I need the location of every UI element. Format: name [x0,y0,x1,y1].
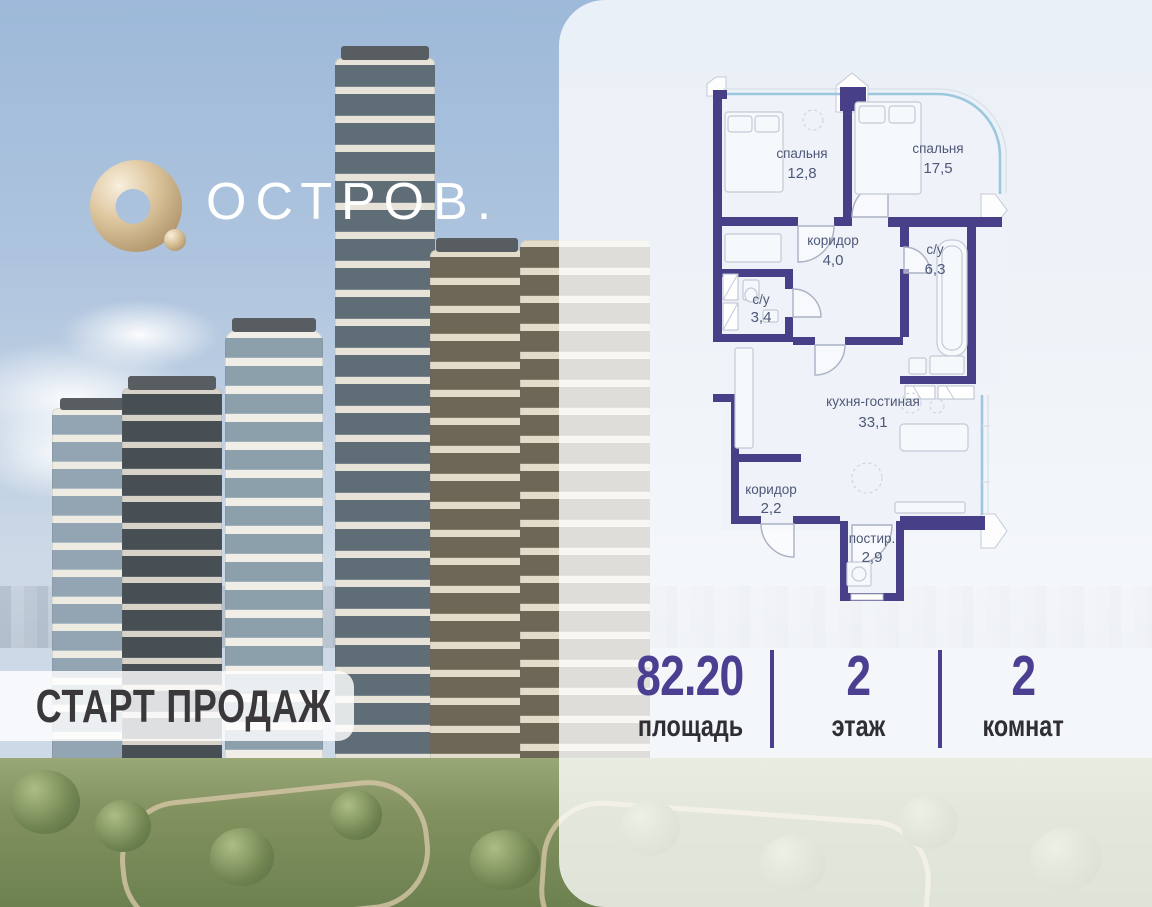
sales-start-badge: СТАРТ ПРОДАЖ [0,671,354,741]
floorplan: спальня 12,8 спальня 17,5 коридор 4,0 с/… [695,54,1020,624]
room-laundry-name: постир. [849,531,896,546]
stat-rooms-value: 2 [1011,648,1035,704]
stat-rooms-label: комнат [982,710,1063,744]
room-kitchen-area: 33,1 [858,414,887,431]
tree [210,828,274,886]
room-corridor2-name: коридор [745,482,797,497]
tower-roof [341,46,429,60]
room-corridor1-name: коридор [807,233,859,248]
room-corridor2-area: 2,2 [761,500,782,517]
room-bedroom1-name: спальня [776,146,827,161]
room-bedroom1-area: 12,8 [787,165,816,182]
tree [330,790,382,840]
logo-ring-icon [81,151,201,271]
room-kitchen-name: кухня-гостиная [826,394,920,409]
promo-card: ОСТРОВ. СТАРТ ПРОДАЖ [0,0,1152,907]
info-panel: спальня 12,8 спальня 17,5 коридор 4,0 с/… [559,0,1152,907]
stat-floor-label: этаж [831,710,885,744]
tree [10,770,80,834]
room-bedroom2-name: спальня [912,141,963,156]
room-laundry-area: 2,9 [862,549,883,566]
tree [95,800,151,852]
brand-name: ОСТРОВ. [206,176,500,228]
stat-area-label: площадь [637,710,742,744]
room-bath2-name: с/у [752,292,770,307]
sales-start-label: СТАРТ ПРОДАЖ [36,679,332,733]
tower-roof [232,318,316,332]
cloud [60,300,220,370]
stat-rooms: 2 комнат [908,648,1138,744]
room-bath1-area: 6,3 [925,261,946,278]
room-bedroom2-area: 17,5 [923,160,952,177]
room-corridor1-area: 4,0 [823,252,844,269]
room-bath1-name: с/у [926,242,944,257]
tree [470,830,540,890]
room-bath2-area: 3,4 [751,309,772,326]
stat-floor-value: 2 [846,648,870,704]
tower-roof [436,238,518,252]
tower-roof [128,376,216,390]
stat-area-value: 82.20 [636,648,743,704]
